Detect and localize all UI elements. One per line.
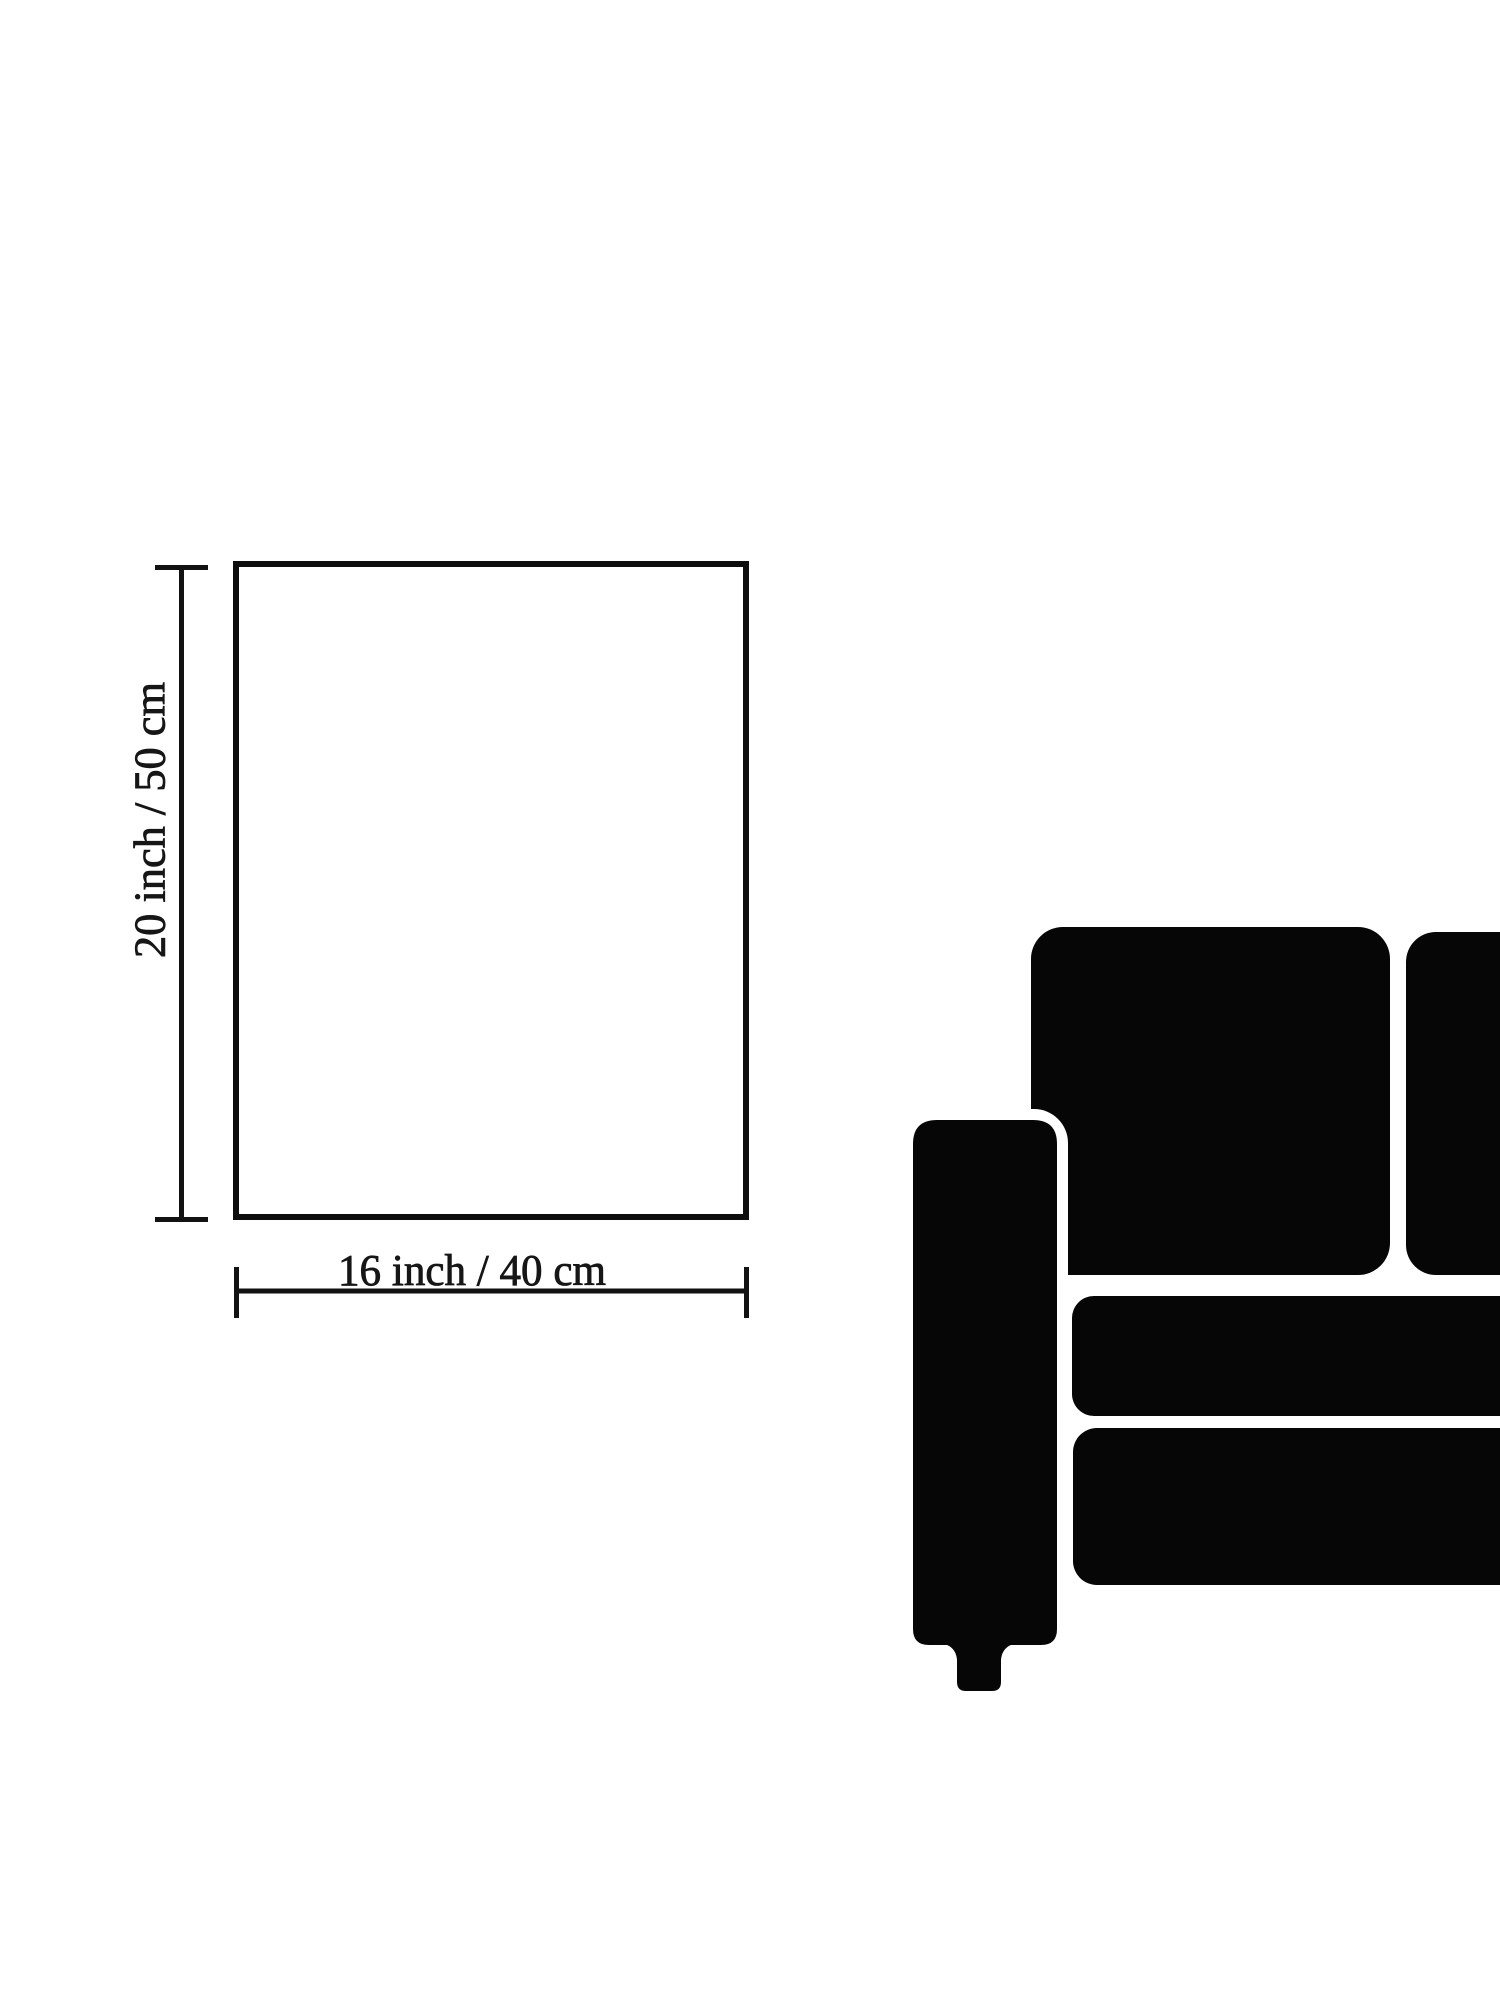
svg-text:20 inch / 50 cm: 20 inch / 50 cm [126, 682, 175, 958]
svg-text:16 inch / 40 cm: 16 inch / 40 cm [338, 1246, 606, 1295]
